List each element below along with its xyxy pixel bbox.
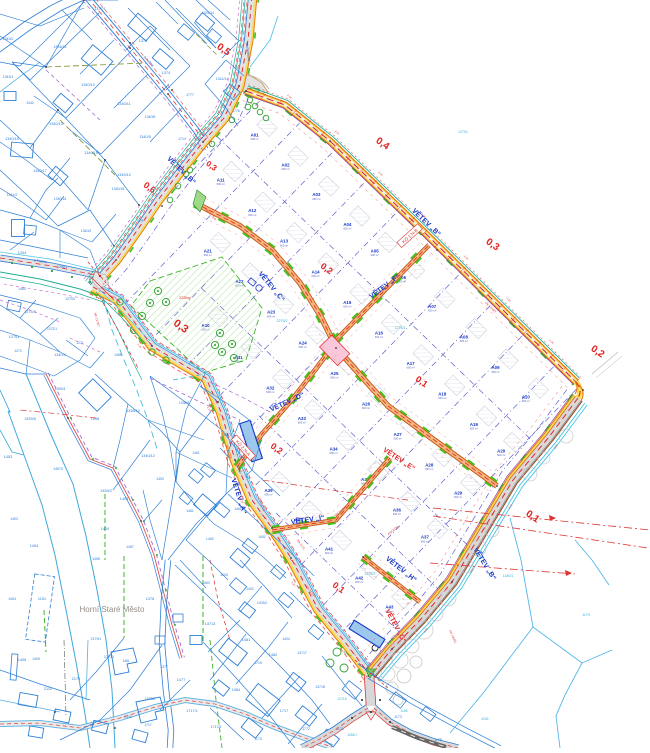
svg-text:1179: 1179 bbox=[582, 613, 590, 617]
svg-text:A41: A41 bbox=[325, 546, 334, 551]
svg-text:12716: 12716 bbox=[337, 697, 346, 701]
svg-text:600 m²: 600 m² bbox=[325, 551, 333, 555]
svg-text:600 m²: 600 m² bbox=[425, 467, 433, 471]
svg-text:1719: 1719 bbox=[254, 661, 262, 665]
svg-text:600 m²: 600 m² bbox=[267, 314, 275, 318]
svg-text:A08: A08 bbox=[460, 335, 469, 340]
svg-text:1461: 1461 bbox=[186, 509, 194, 513]
svg-text:A15: A15 bbox=[343, 300, 352, 305]
svg-text:600 m²: 600 m² bbox=[281, 167, 289, 171]
svg-text:1377: 1377 bbox=[160, 665, 168, 669]
svg-text:1402: 1402 bbox=[246, 587, 254, 591]
svg-text:600 m²: 600 m² bbox=[298, 421, 306, 425]
svg-text:979: 979 bbox=[137, 219, 143, 223]
svg-text:600 m²: 600 m² bbox=[204, 253, 212, 257]
svg-text:A36: A36 bbox=[393, 508, 402, 513]
svg-text:1377/1: 1377/1 bbox=[94, 7, 106, 11]
svg-text:1453: 1453 bbox=[10, 517, 18, 521]
svg-text:A03: A03 bbox=[312, 192, 321, 197]
svg-text:1477: 1477 bbox=[177, 678, 185, 682]
svg-text:12751: 12751 bbox=[458, 130, 468, 134]
svg-text:1186/1: 1186/1 bbox=[347, 733, 357, 737]
svg-text:600 m²: 600 m² bbox=[299, 345, 307, 349]
svg-text:1463: 1463 bbox=[202, 581, 210, 585]
svg-text:1342: 1342 bbox=[26, 101, 34, 105]
svg-text:13711: 13711 bbox=[104, 655, 114, 659]
svg-text:1340/14: 1340/14 bbox=[5, 137, 19, 141]
svg-text:2110: 2110 bbox=[44, 687, 52, 691]
svg-text:A42: A42 bbox=[355, 576, 364, 581]
svg-text:1340/12: 1340/12 bbox=[141, 454, 155, 458]
svg-text:1339/7: 1339/7 bbox=[221, 433, 231, 437]
svg-text:1173: 1173 bbox=[394, 715, 402, 719]
svg-text:1403/2: 1403/2 bbox=[257, 601, 267, 605]
svg-text:1341/14: 1341/14 bbox=[202, 11, 214, 15]
svg-text:A10: A10 bbox=[522, 394, 531, 399]
svg-text:1717/3: 1717/3 bbox=[211, 725, 222, 729]
svg-text:600 m²: 600 m² bbox=[355, 580, 363, 584]
svg-text:1340/10: 1340/10 bbox=[81, 83, 95, 87]
svg-text:1170: 1170 bbox=[254, 737, 262, 741]
svg-text:600 m²: 600 m² bbox=[407, 366, 415, 370]
svg-text:600 m²: 600 m² bbox=[438, 396, 446, 400]
svg-text:1175: 1175 bbox=[434, 738, 442, 742]
svg-text:1346/11: 1346/11 bbox=[53, 45, 66, 49]
svg-text:600 m²: 600 m² bbox=[497, 453, 505, 457]
svg-text:1717/1: 1717/1 bbox=[186, 709, 198, 713]
svg-text:600 m²: 600 m² bbox=[264, 493, 272, 497]
svg-text:A24: A24 bbox=[299, 340, 308, 345]
svg-text:1341/14: 1341/14 bbox=[216, 77, 229, 81]
svg-text:Horní Staré Město: Horní Staré Město bbox=[80, 605, 145, 614]
svg-text:2179/1: 2179/1 bbox=[91, 637, 102, 641]
svg-text:1453: 1453 bbox=[4, 455, 12, 459]
svg-text:1275/2: 1275/2 bbox=[395, 326, 406, 330]
svg-text:600 m²: 600 m² bbox=[312, 197, 320, 201]
svg-text:1457: 1457 bbox=[126, 545, 134, 549]
svg-text:13717: 13717 bbox=[297, 651, 307, 655]
svg-text:600 m²: 600 m² bbox=[470, 427, 478, 431]
svg-text:A19: A19 bbox=[470, 422, 479, 427]
svg-text:1461: 1461 bbox=[192, 451, 200, 455]
svg-text:A20: A20 bbox=[497, 449, 506, 454]
svg-text:1454: 1454 bbox=[8, 597, 16, 601]
svg-text:14573: 14573 bbox=[53, 467, 63, 471]
svg-text:1454: 1454 bbox=[30, 544, 38, 548]
svg-text:1374: 1374 bbox=[162, 71, 170, 75]
svg-text:600 m²: 600 m² bbox=[330, 451, 338, 455]
svg-text:600 m²: 600 m² bbox=[491, 370, 499, 374]
svg-text:1984: 1984 bbox=[232, 688, 240, 692]
svg-text:A04: A04 bbox=[343, 222, 352, 227]
svg-text:1273: 1273 bbox=[14, 349, 22, 353]
svg-text:1409: 1409 bbox=[32, 657, 40, 661]
svg-text:600 m²: 600 m² bbox=[428, 309, 436, 313]
svg-text:A25: A25 bbox=[330, 371, 339, 376]
svg-text:600 m²: 600 m² bbox=[375, 335, 383, 339]
svg-text:1343/2: 1343/2 bbox=[3, 37, 14, 41]
svg-text:1717: 1717 bbox=[280, 709, 288, 713]
svg-text:600 m²: 600 m² bbox=[266, 390, 274, 394]
svg-text:1340/8: 1340/8 bbox=[145, 115, 156, 119]
svg-text:1375: 1375 bbox=[139, 39, 147, 43]
svg-text:600 m²: 600 m² bbox=[217, 182, 225, 186]
svg-text:600 m²: 600 m² bbox=[362, 406, 370, 410]
svg-text:A32: A32 bbox=[266, 385, 275, 390]
svg-text:13713: 13713 bbox=[205, 622, 216, 626]
svg-text:1340/5: 1340/5 bbox=[139, 135, 151, 139]
svg-text:A16: A16 bbox=[375, 330, 384, 335]
svg-text:1340/4: 1340/4 bbox=[54, 353, 66, 357]
svg-text:1776: 1776 bbox=[232, 109, 240, 113]
svg-text:1340/2: 1340/2 bbox=[81, 229, 92, 233]
svg-text:1340/16: 1340/16 bbox=[54, 197, 67, 201]
svg-text:A27: A27 bbox=[394, 432, 403, 437]
svg-text:A07: A07 bbox=[428, 304, 437, 309]
svg-text:A28: A28 bbox=[425, 463, 434, 468]
svg-text:600 m²: 600 m² bbox=[330, 375, 338, 379]
svg-text:A05: A05 bbox=[371, 249, 380, 254]
svg-text:1343/1: 1343/1 bbox=[3, 75, 14, 79]
svg-text:1453: 1453 bbox=[156, 477, 164, 481]
svg-text:2275/2: 2275/2 bbox=[277, 319, 288, 323]
svg-text:1180/1: 1180/1 bbox=[503, 574, 514, 578]
svg-text:600 m²: 600 m² bbox=[251, 137, 259, 141]
svg-text:1378: 1378 bbox=[146, 597, 154, 601]
svg-text:1340/19: 1340/19 bbox=[84, 151, 98, 155]
svg-text:A18: A18 bbox=[438, 392, 447, 397]
svg-text:A34: A34 bbox=[330, 447, 339, 452]
svg-text:1400: 1400 bbox=[101, 527, 109, 531]
svg-text:1456: 1456 bbox=[92, 557, 100, 561]
svg-text:1408: 1408 bbox=[120, 497, 128, 501]
svg-text:600 m²: 600 m² bbox=[343, 305, 351, 309]
svg-text:1185: 1185 bbox=[400, 709, 407, 713]
svg-text:1096/1: 1096/1 bbox=[57, 265, 68, 269]
svg-text:A02: A02 bbox=[281, 162, 290, 167]
svg-text:A14: A14 bbox=[312, 269, 321, 274]
svg-text:1404: 1404 bbox=[282, 637, 290, 641]
svg-text:1340/18: 1340/18 bbox=[112, 187, 125, 191]
svg-text:A33: A33 bbox=[298, 416, 307, 421]
svg-text:1714: 1714 bbox=[178, 137, 186, 141]
svg-text:2235m²: 2235m² bbox=[179, 296, 191, 300]
svg-text:12753: 12753 bbox=[65, 297, 75, 301]
svg-text:A21: A21 bbox=[204, 249, 213, 254]
svg-text:A11: A11 bbox=[217, 178, 225, 183]
svg-text:A12: A12 bbox=[248, 208, 257, 213]
svg-text:1717: 1717 bbox=[144, 723, 152, 727]
svg-text:600 m²: 600 m² bbox=[522, 399, 530, 403]
svg-text:2111: 2111 bbox=[124, 715, 132, 719]
svg-text:L462: L462 bbox=[206, 537, 214, 541]
svg-text:1464: 1464 bbox=[18, 287, 26, 291]
svg-text:1482: 1482 bbox=[269, 653, 277, 657]
svg-text:A13: A13 bbox=[280, 239, 289, 244]
svg-text:1408: 1408 bbox=[18, 658, 26, 662]
svg-text:A26: A26 bbox=[362, 401, 371, 406]
svg-text:A23: A23 bbox=[267, 310, 276, 315]
svg-text:1151: 1151 bbox=[38, 597, 46, 601]
svg-text:600 m²: 600 m² bbox=[312, 274, 320, 278]
svg-text:1401: 1401 bbox=[258, 535, 266, 539]
svg-text:600 m²: 600 m² bbox=[421, 539, 429, 543]
svg-text:1171: 1171 bbox=[336, 727, 344, 731]
svg-text:A01: A01 bbox=[251, 133, 260, 138]
svg-text:1772: 1772 bbox=[302, 727, 310, 731]
svg-text:1275/3: 1275/3 bbox=[24, 310, 36, 314]
svg-text:1339/5: 1339/5 bbox=[24, 417, 36, 421]
svg-text:1777: 1777 bbox=[186, 93, 194, 97]
svg-text:1339/4: 1339/4 bbox=[55, 387, 66, 391]
svg-text:600 m²: 600 m² bbox=[371, 253, 379, 257]
svg-text:600 m²: 600 m² bbox=[460, 339, 468, 343]
svg-text:A09: A09 bbox=[491, 365, 500, 370]
svg-text:600 m²: 600 m² bbox=[394, 437, 402, 441]
svg-text:1468: 1468 bbox=[114, 353, 122, 357]
svg-text:A29: A29 bbox=[454, 490, 463, 495]
svg-text:A17: A17 bbox=[407, 361, 416, 366]
svg-text:1340/13: 1340/13 bbox=[49, 122, 63, 126]
svg-text:1349/12: 1349/12 bbox=[117, 173, 131, 177]
svg-text:1481: 1481 bbox=[122, 659, 130, 663]
svg-text:1462: 1462 bbox=[234, 507, 242, 511]
svg-text:600 m²: 600 m² bbox=[248, 213, 256, 217]
svg-text:1338/12: 1338/12 bbox=[126, 409, 140, 413]
svg-text:13718: 13718 bbox=[315, 685, 325, 689]
svg-text:1272/1: 1272/1 bbox=[47, 327, 57, 331]
svg-text:1481: 1481 bbox=[242, 638, 250, 642]
svg-text:2179: 2179 bbox=[72, 677, 80, 681]
svg-text:600 m²: 600 m² bbox=[393, 512, 401, 516]
svg-text:A37: A37 bbox=[421, 535, 430, 540]
svg-text:1338/9: 1338/9 bbox=[179, 401, 189, 405]
svg-text:1339/2: 1339/2 bbox=[100, 489, 112, 493]
svg-text:1341/2: 1341/2 bbox=[7, 193, 18, 197]
svg-text:600 m²: 600 m² bbox=[454, 495, 462, 499]
svg-text:1181: 1181 bbox=[481, 717, 489, 721]
svg-text:600 m²: 600 m² bbox=[280, 243, 288, 247]
svg-text:600 m²: 600 m² bbox=[343, 227, 351, 231]
